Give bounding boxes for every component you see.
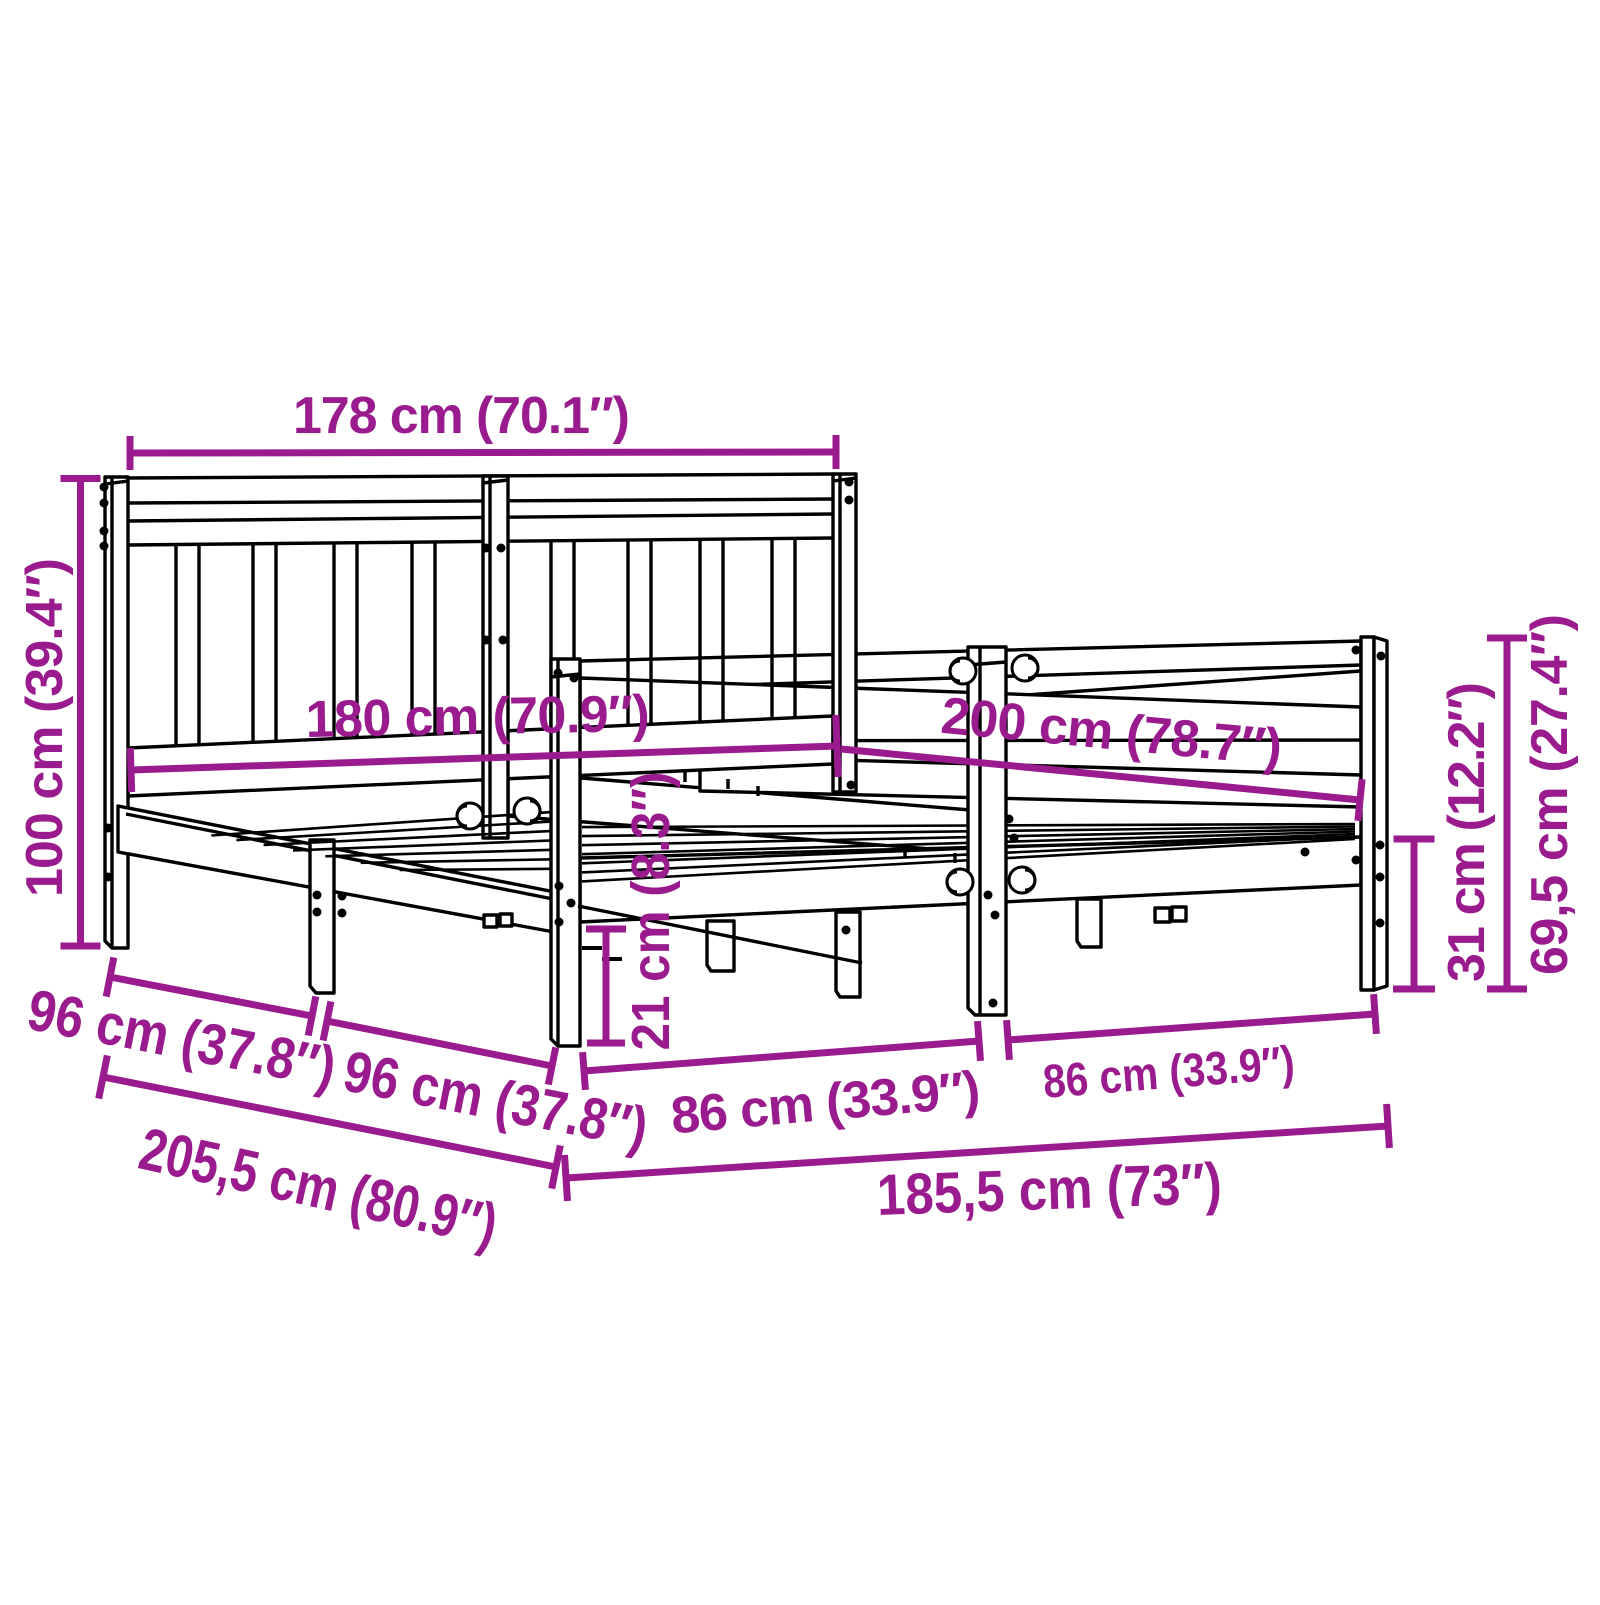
svg-text:180 cm (70.9″): 180 cm (70.9″) [305, 685, 650, 749]
svg-text:69,5 cm (27.4″): 69,5 cm (27.4″) [1521, 614, 1579, 975]
svg-text:21 cm (8.3″): 21 cm (8.3″) [621, 772, 681, 1051]
svg-text:185,5 cm (73″): 185,5 cm (73″) [876, 1151, 1223, 1228]
svg-text:178 cm (70.1″): 178 cm (70.1″) [293, 387, 630, 445]
svg-text:31 cm (12.2″): 31 cm (12.2″) [1438, 682, 1496, 982]
svg-text:100 cm (39.4″): 100 cm (39.4″) [16, 558, 74, 897]
